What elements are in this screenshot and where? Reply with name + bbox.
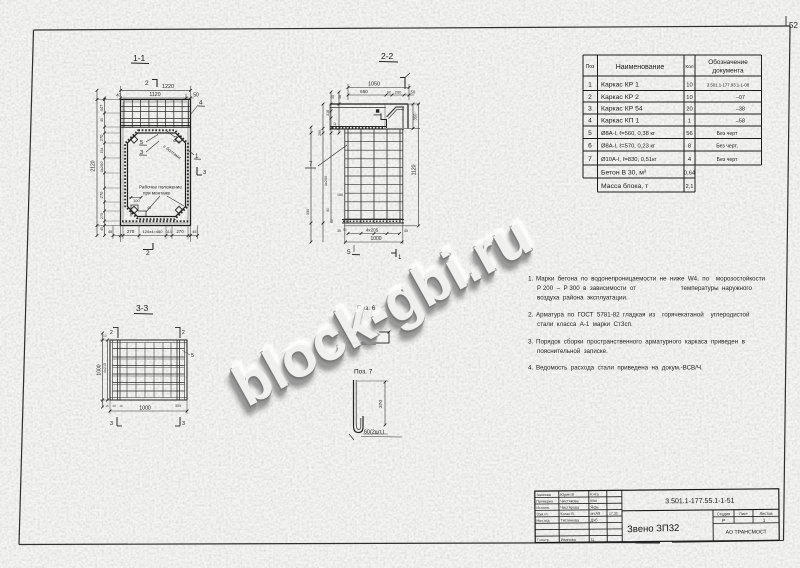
svg-text:Ведомость расхода стали при: Ведомость расхода стали приведена на док…	[536, 365, 703, 372]
svg-text:Каркас КР 2: Каркас КР 2	[601, 94, 639, 101]
svg-text:Поз. 7: Поз. 7	[354, 369, 373, 376]
svg-text:Порядок сборки пространствен: Порядок сборки пространственного арматур…	[536, 339, 746, 346]
svg-text:Без черт: Без черт	[717, 157, 738, 163]
svg-text:Стадия: Стадия	[717, 511, 731, 516]
svg-text:АО ТРАНСМОСТ: АО ТРАНСМОСТ	[726, 529, 768, 535]
svg-text:50: 50	[193, 93, 199, 99]
svg-text:35: 35	[331, 95, 335, 99]
svg-text:90: 90	[326, 208, 330, 212]
svg-text:Лист: Лист	[739, 511, 748, 516]
svg-text:2-2: 2-2	[381, 51, 394, 61]
svg-text:Исполн.: Исполн.	[536, 506, 549, 510]
svg-text:45: 45	[108, 230, 112, 234]
svg-text:4х205: 4х205	[366, 228, 379, 233]
svg-text:3.: 3.	[528, 339, 534, 346]
svg-text:Звено ЗП32: Звено ЗП32	[627, 523, 680, 535]
svg-text:Арматура по ГОСТ 5781-82 г: Арматура по ГОСТ 5781-82 гладкая из горя…	[536, 312, 750, 319]
svg-text:Кчта: Кчта	[590, 491, 599, 496]
svg-text:35: 35	[337, 229, 341, 233]
svg-text:10: 10	[103, 334, 107, 338]
svg-text:56: 56	[686, 131, 692, 137]
svg-text:90: 90	[112, 404, 116, 408]
svg-text:270: 270	[99, 191, 104, 199]
svg-text:3: 3	[588, 106, 592, 113]
svg-text:1000: 1000	[139, 406, 151, 412]
svg-text:110: 110	[166, 230, 172, 234]
svg-text:1-1: 1-1	[133, 53, 146, 63]
svg-text:4.: 4.	[528, 365, 534, 372]
svg-text:Листов: Листов	[759, 511, 772, 516]
svg-text:5: 5	[347, 249, 351, 256]
svg-text:Юрин В: Юрин В	[560, 493, 574, 497]
svg-text:2: 2	[588, 94, 592, 101]
svg-text:2: 2	[110, 330, 113, 336]
svg-text:10: 10	[686, 95, 692, 101]
svg-text:1: 1	[588, 81, 592, 88]
svg-text:38: 38	[338, 95, 342, 99]
svg-text:2: 2	[145, 80, 149, 87]
svg-text:270: 270	[127, 229, 135, 234]
svg-text:Ø8А-I, ℓ=560, 0,38 кг: Ø8А-I, ℓ=560, 0,38 кг	[601, 131, 655, 137]
svg-text:Иванова: Иванова	[561, 538, 577, 542]
svg-text:45: 45	[119, 404, 123, 408]
svg-text:52: 52	[789, 21, 798, 30]
svg-text:Зам.гл.: Зам.гл.	[536, 512, 548, 516]
svg-text:270: 270	[99, 134, 104, 142]
svg-text:200: 200	[395, 90, 402, 95]
svg-text:45: 45	[100, 118, 104, 122]
svg-text:45: 45	[404, 229, 408, 233]
svg-text:1000: 1000	[370, 236, 381, 242]
svg-text:Титлянова: Титлянова	[561, 518, 580, 522]
svg-text:Мог: Мог	[590, 498, 598, 503]
svg-text:45: 45	[192, 230, 196, 234]
svg-text:Каркас КП 1: Каркас КП 1	[601, 118, 639, 125]
svg-text:305: 305	[175, 404, 181, 408]
svg-text:2120: 2120	[91, 160, 97, 171]
svg-text:Коган В: Коган В	[560, 512, 574, 516]
svg-text:154: 154	[100, 148, 104, 154]
svg-text:1: 1	[763, 518, 766, 524]
svg-text:45: 45	[105, 404, 109, 408]
svg-text:Без черт,: Без черт,	[716, 144, 738, 150]
svg-text:Р: Р	[722, 518, 725, 524]
svg-text:2: 2	[182, 330, 185, 336]
svg-text:3: 3	[182, 421, 185, 427]
svg-text:17.33: 17.33	[609, 512, 618, 516]
svg-text:3.501.1-177.55.1-1-51: 3.501.1-177.55.1-1-51	[665, 498, 734, 506]
svg-text:Марки бетона по водонепрони: Марки бетона по водонепроницаемости не н…	[536, 276, 766, 283]
svg-text:45: 45	[100, 227, 104, 231]
svg-text:180: 180	[337, 193, 343, 197]
svg-text:1120: 1120	[412, 164, 418, 175]
svg-text:3: 3	[110, 421, 113, 427]
svg-text:370: 370	[378, 400, 384, 408]
svg-text:пояснительной записке.: пояснительной записке.	[537, 348, 608, 355]
svg-text:10: 10	[686, 82, 692, 88]
svg-text:1050: 1050	[368, 82, 380, 88]
svg-text:Ø8А-I, ℓ=570, 0,23 кг: Ø8А-I, ℓ=570, 0,23 кг	[601, 144, 655, 150]
svg-text:290: 290	[318, 130, 322, 136]
svg-text:Поз: Поз	[586, 64, 595, 70]
svg-text:4х200: 4х200	[324, 176, 328, 186]
svg-text:Дхб: Дхб	[591, 517, 599, 522]
svg-text:20: 20	[686, 107, 692, 113]
svg-text:1120: 1120	[149, 92, 160, 98]
svg-text:318: 318	[326, 110, 330, 116]
svg-text:Проверил: Проверил	[536, 499, 553, 503]
svg-text:4х215: 4х215	[103, 363, 107, 373]
svg-text:45: 45	[147, 206, 151, 210]
svg-text:Чистякова: Чистякова	[560, 499, 579, 503]
svg-text:4: 4	[199, 100, 203, 107]
svg-text:447: 447	[99, 104, 104, 112]
svg-text:Наименование: Наименование	[616, 64, 665, 71]
svg-text:3: 3	[203, 170, 206, 176]
svg-text:60: 60	[387, 91, 391, 95]
svg-text:270: 270	[176, 229, 184, 234]
svg-text:6: 6	[588, 143, 592, 150]
svg-text:5: 5	[191, 353, 194, 359]
svg-text:Ц.: Ц.	[591, 537, 595, 542]
svg-text:12: 12	[333, 122, 337, 126]
svg-text:2,1: 2,1	[685, 184, 693, 190]
svg-text:7: 7	[588, 156, 592, 163]
svg-text:3.501.1-177.93.1-1-08: 3.501.1-177.93.1-1-08	[707, 82, 750, 87]
svg-text:–38: –38	[736, 107, 745, 113]
svg-text:1000: 1000	[97, 364, 103, 375]
svg-text:4: 4	[588, 118, 592, 125]
svg-text:Бетон В 30, м³: Бетон В 30, м³	[601, 169, 647, 176]
svg-text:1220: 1220	[162, 84, 174, 90]
svg-text:Яфь: Яфь	[590, 504, 598, 509]
svg-text:Каркас КР 1: Каркас КР 1	[601, 81, 639, 88]
svg-text:4х200: 4х200	[99, 161, 104, 173]
svg-text:330: 330	[306, 209, 310, 215]
svg-text:Ø10А-I, ℓ=830, 0,51кг: Ø10А-I, ℓ=830, 0,51кг	[601, 157, 657, 163]
svg-text:Чистярова: Чистярова	[560, 506, 580, 510]
svg-text:2: 2	[146, 250, 150, 257]
svg-text:1.: 1.	[528, 276, 534, 283]
svg-text:40: 40	[116, 93, 121, 98]
svg-text:–07: –07	[736, 95, 745, 101]
svg-text:270: 270	[100, 213, 104, 219]
svg-text:650: 650	[360, 89, 368, 94]
svg-text:350: 350	[413, 113, 418, 121]
svg-text:воздуха района эксплуатации.: воздуха района эксплуатации.	[537, 295, 628, 302]
svg-text:Р 200 – Р 300 в зависимост: Р 200 – Р 300 в зависимости от температу…	[537, 285, 753, 292]
svg-text:Т.контр: Т.контр	[537, 538, 549, 542]
svg-text:0,64: 0,64	[684, 170, 696, 176]
svg-text:50: 50	[411, 90, 416, 95]
svg-text:1: 1	[688, 119, 691, 125]
svg-text:Без черт: Без черт	[717, 131, 738, 137]
svg-text:стали класса А-1 марки СтЗ: стали класса А-1 марки СтЗсп.	[537, 321, 633, 328]
svg-text:2.: 2.	[528, 312, 534, 319]
svg-text:мчА9: мчА9	[590, 511, 601, 516]
svg-text:100: 100	[133, 198, 140, 203]
svg-text:при монтаже: при монтаже	[143, 191, 171, 196]
svg-text:60: 60	[330, 219, 334, 223]
svg-text:Кол: Кол	[685, 64, 693, 70]
svg-text:60(2шт.): 60(2шт.)	[364, 430, 384, 436]
svg-text:документа: документа	[712, 68, 744, 75]
svg-text:8: 8	[688, 144, 691, 150]
svg-text:3-3: 3-3	[136, 303, 149, 313]
svg-text:120х4=480: 120х4=480	[143, 229, 164, 234]
svg-text:5: 5	[588, 130, 592, 137]
svg-text:–58: –58	[736, 119, 745, 125]
svg-text:Нач.отд: Нач.отд	[537, 519, 551, 523]
svg-text:Обозначение: Обозначение	[708, 58, 748, 66]
svg-text:Заказчик: Заказчик	[536, 493, 551, 497]
svg-text:Рабочее положение: Рабочее положение	[139, 185, 182, 190]
svg-text:Масса блока, т: Масса блока, т	[601, 182, 648, 190]
svg-text:Каркас КР 54: Каркас КР 54	[601, 106, 643, 113]
